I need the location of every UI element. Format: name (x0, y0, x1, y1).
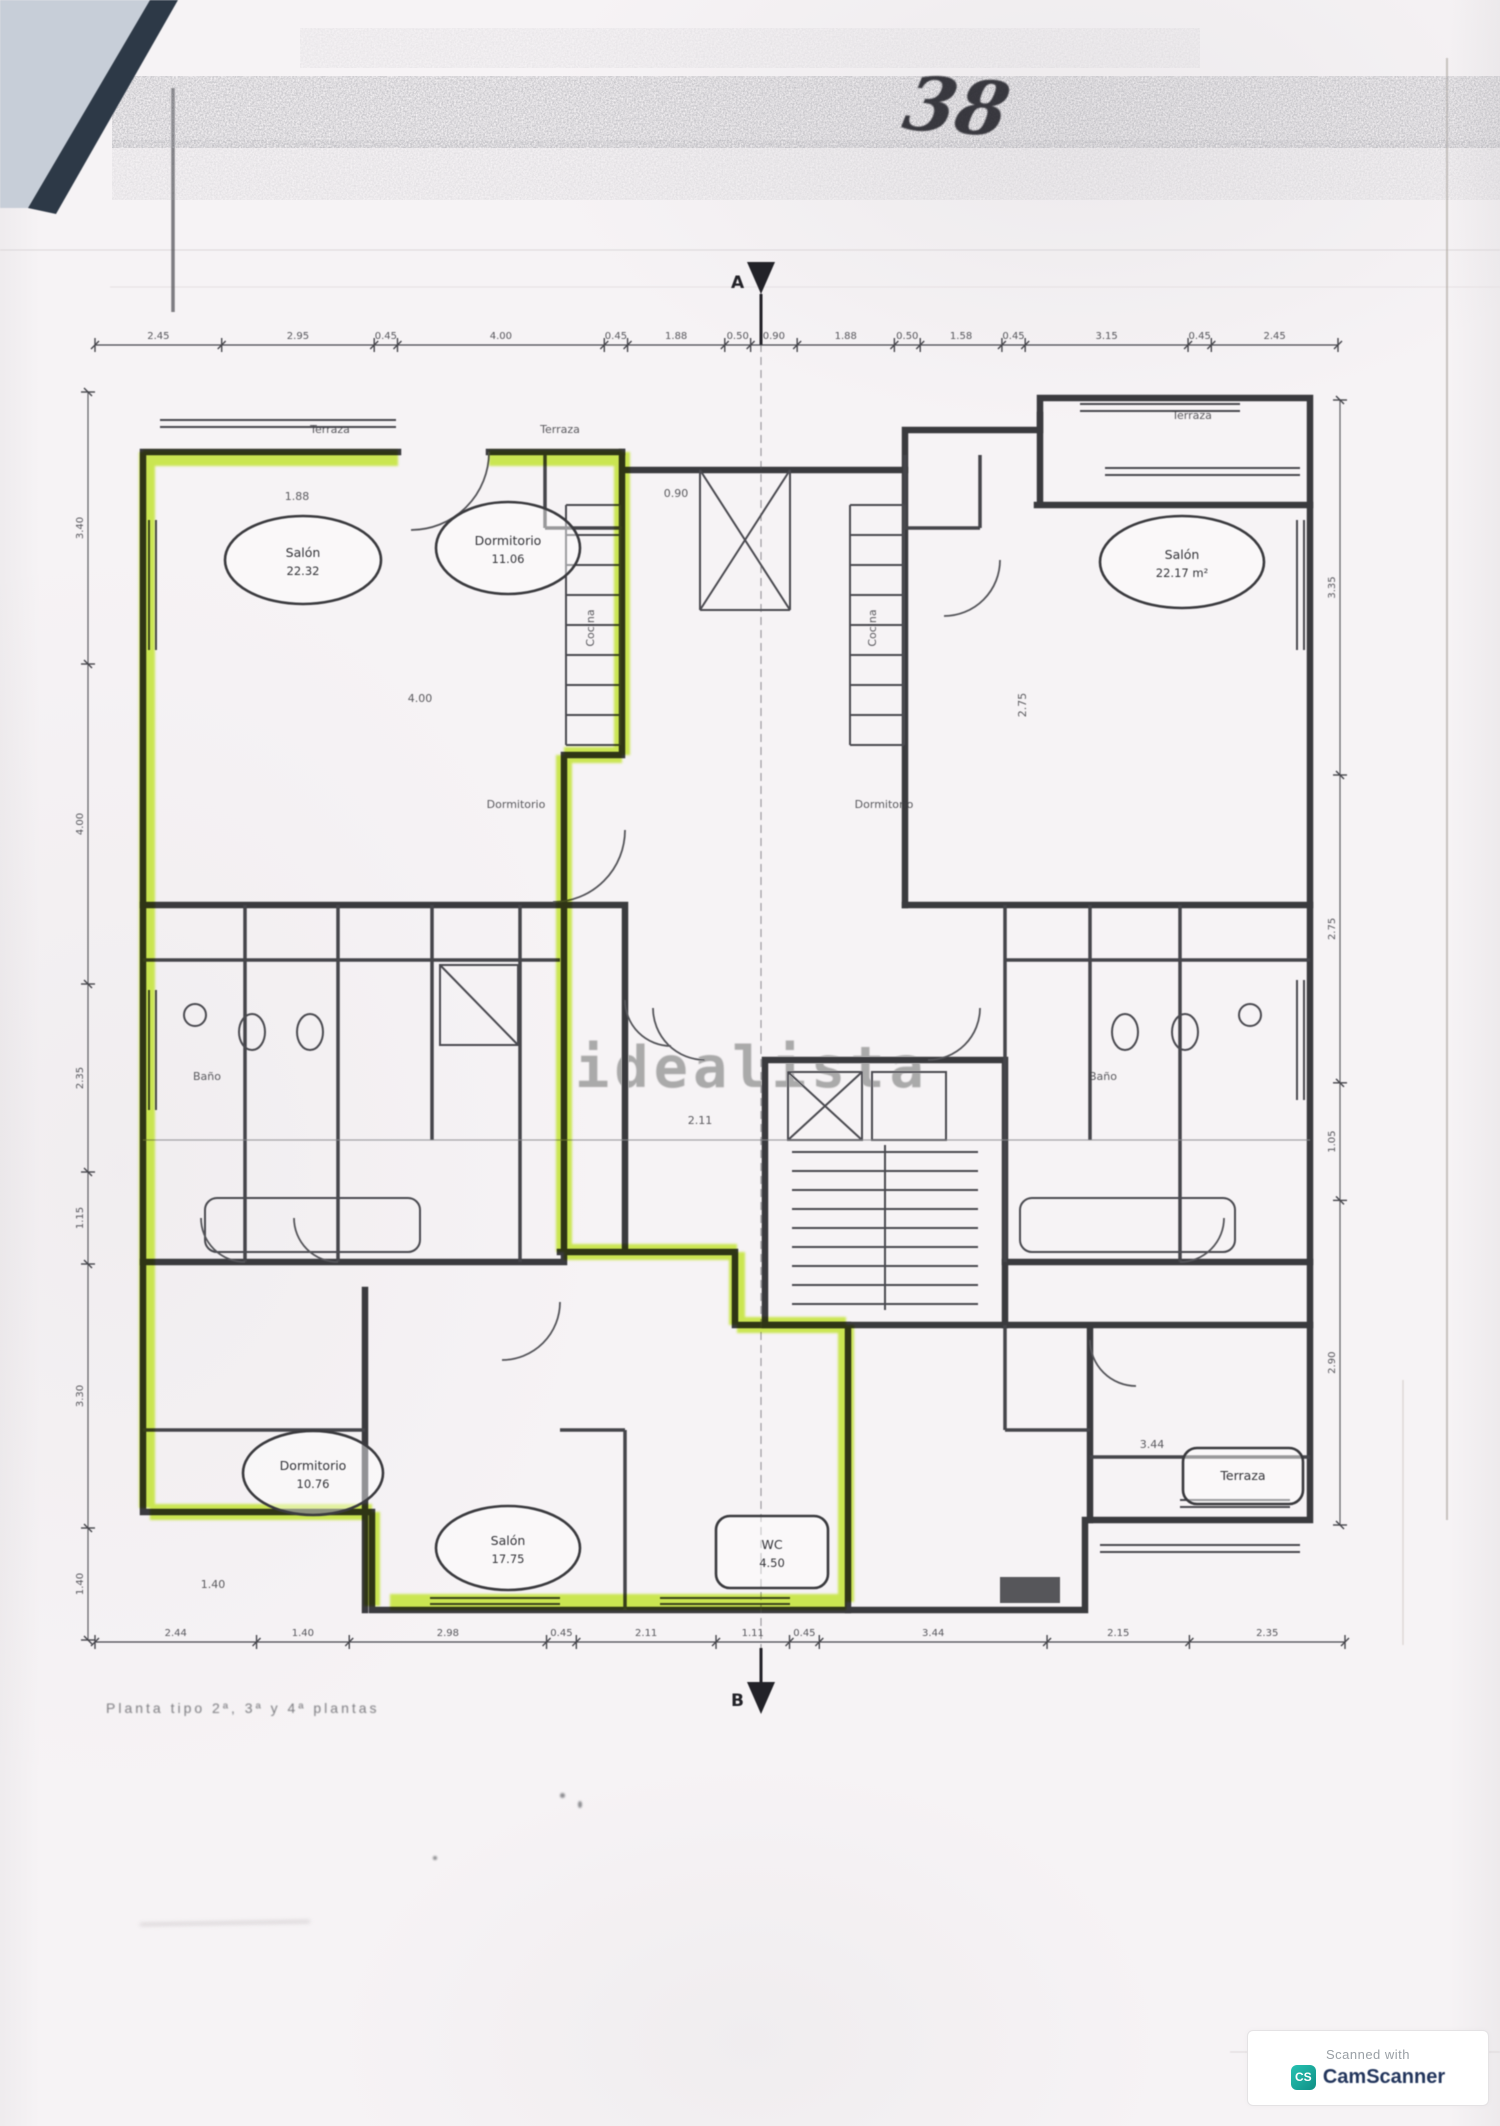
badge-app-name: CamScanner (1323, 2066, 1445, 2089)
scan-artifacts (0, 0, 1500, 2126)
ink-speck (560, 1793, 565, 1798)
badge-prefix: Scanned with (1326, 2047, 1410, 2062)
ink-speck (578, 1801, 582, 1808)
smudge-band (112, 28, 1500, 200)
camscanner-icon: CS (1291, 2065, 1316, 2090)
ink-speck (433, 1856, 437, 1860)
camscanner-badge: Scanned with CS CamScanner (1247, 2030, 1489, 2106)
scanned-page: A B 2.452.950.454.000.451.880.500.901.88… (0, 0, 1500, 2126)
